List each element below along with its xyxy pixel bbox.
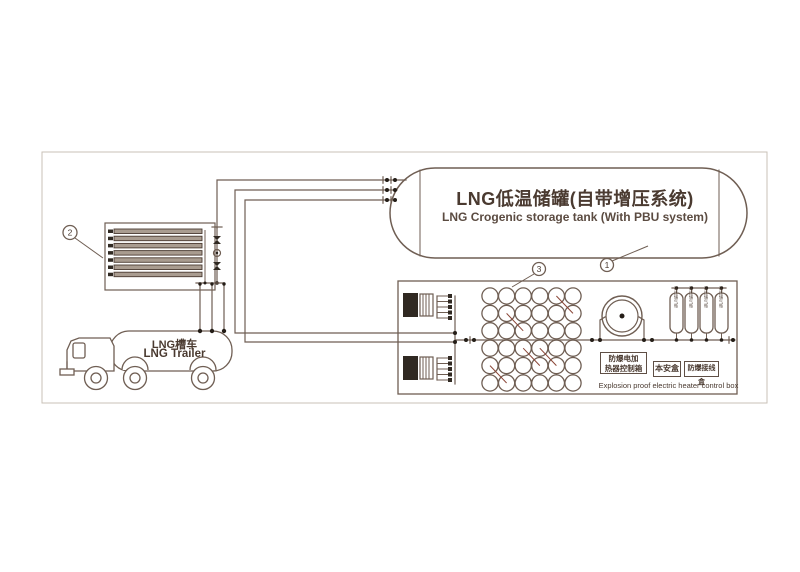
callout-3-number: 3	[537, 264, 542, 274]
valve-icon	[213, 262, 221, 270]
diagram-canvas: 高压储气瓶 高压储气瓶 高压储气瓶 高压储气瓶 2 3 1 LNG低温储罐(自带…	[0, 0, 800, 572]
trailer-fill-lines	[196, 282, 226, 332]
callout-2-number: 2	[68, 228, 73, 238]
equipment-skid: 高压储气瓶 高压储气瓶 高压储气瓶 高压储气瓶	[398, 281, 737, 394]
heater-control-box-line1: 防爆电加	[601, 354, 646, 364]
cab-window	[73, 343, 85, 358]
pump-unit-bottom	[403, 356, 452, 382]
valve-icon	[213, 236, 221, 244]
heater-control-box-label: 防爆电加 热器控制箱	[600, 352, 647, 374]
front-bumper	[60, 369, 74, 375]
junction-box-label: 防爆接线盒	[684, 361, 719, 377]
vaporizer-tubes	[108, 229, 202, 277]
trailer-label-en: LNG Trailer	[122, 348, 227, 360]
tank-title-cn: LNG低温储罐(自带增压系统)	[410, 185, 740, 211]
cylinder-label: 高压储气瓶	[718, 285, 724, 309]
heater-drum	[590, 296, 654, 342]
vaporizer	[105, 223, 215, 290]
pump-unit-top	[403, 293, 452, 320]
cylinder-label: 高压储气瓶	[673, 285, 679, 309]
gas-cylinders: 高压储气瓶 高压储气瓶 高压储气瓶 高压储气瓶	[670, 285, 728, 342]
safety-box-label: 本安盒	[653, 361, 681, 377]
heater-control-box-line2: 热器控制箱	[601, 364, 646, 374]
cylinder-label: 高压储气瓶	[703, 285, 709, 309]
callout-1-number: 1	[605, 260, 610, 270]
cylinder-label: 高压储气瓶	[688, 285, 694, 309]
vaporizer-valve-column	[212, 227, 222, 285]
piping-diagram: 高压储气瓶 高压储气瓶 高压储气瓶 高压储气瓶 2 3 1	[0, 0, 800, 572]
skid-caption: Explosion proof electric heater control …	[596, 381, 741, 390]
tank-title-en: LNG Crogenic storage tank (With PBU syst…	[410, 210, 740, 224]
